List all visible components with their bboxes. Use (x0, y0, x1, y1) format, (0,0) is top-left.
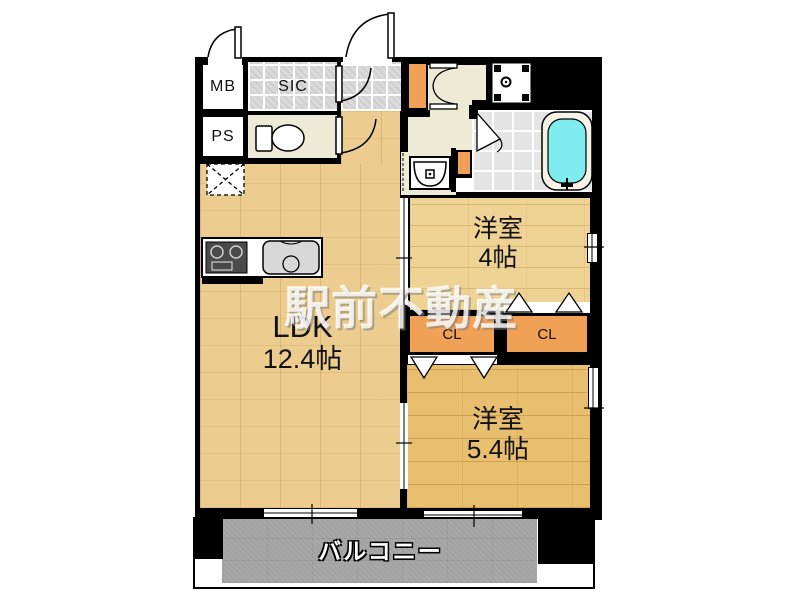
closet-a-folding-doors (411, 357, 497, 378)
toilet-door-swing (336, 117, 376, 154)
mb-door-swing (208, 27, 241, 58)
kitchen-sink (263, 241, 319, 274)
bathroom-folding-door (477, 113, 502, 152)
toilet-fixture (256, 125, 304, 151)
floor-plan: MB PS CL CL バルコニー SIC LDK 12.4帖 洋室 4帖 洋 (0, 0, 800, 600)
washbasin (414, 162, 446, 186)
dimension-ticks (312, 247, 604, 527)
bathtub (542, 112, 592, 190)
gas-stove (206, 242, 247, 273)
refrigerator-space (207, 164, 244, 195)
entrance-door-swing (346, 13, 394, 58)
sic-door-swing (336, 66, 371, 102)
washing-machine-pan (491, 62, 532, 104)
closet-b-folding-doors (506, 293, 582, 312)
hall-double-door (430, 63, 457, 109)
opening-lines (403, 153, 404, 489)
fixtures-overlay (0, 0, 800, 600)
